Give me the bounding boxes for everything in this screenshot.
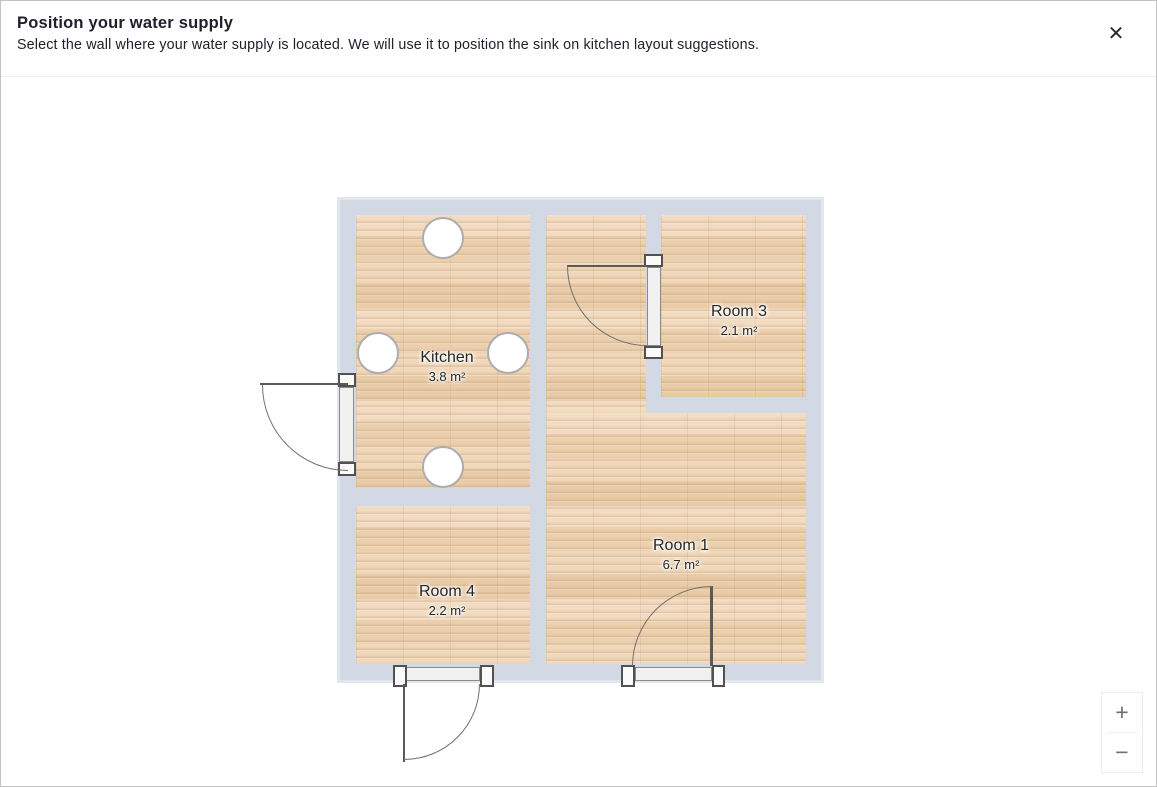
wall-marker-left[interactable] — [357, 332, 399, 374]
door-swing-arc — [262, 385, 348, 471]
wall-marker-bottom[interactable] — [422, 446, 464, 488]
floor-plan: Kitchen 3.8 m² Room 1 6.7 m² Room 3 2.1 … — [337, 197, 824, 683]
room-label-room3: Room 3 2.1 m² — [711, 302, 767, 340]
door-jamb — [644, 346, 663, 359]
floorplan-canvas: Kitchen 3.8 m² Room 1 6.7 m² Room 3 2.1 … — [1, 78, 1156, 786]
room-name: Room 3 — [711, 302, 767, 322]
room-label-room1: Room 1 6.7 m² — [653, 536, 709, 574]
room-label-kitchen: Kitchen 3.8 m² — [420, 348, 473, 386]
wall-marker-top[interactable] — [422, 217, 464, 259]
modal: Position your water supply Select the wa… — [0, 0, 1157, 787]
room-area: 3.8 m² — [420, 368, 473, 386]
zoom-out-button[interactable]: − — [1102, 733, 1142, 772]
door-slab — [406, 667, 480, 681]
door-slab — [647, 267, 661, 346]
room-area: 2.1 m² — [711, 322, 767, 340]
zoom-controls: + − — [1101, 692, 1143, 773]
modal-header: Position your water supply Select the wa… — [1, 1, 1156, 77]
room-area: 2.2 m² — [419, 602, 475, 620]
door-jamb — [480, 665, 494, 687]
door-swing-arc — [404, 684, 480, 760]
zoom-in-button[interactable]: + — [1102, 693, 1142, 732]
page-title: Position your water supply — [17, 12, 1140, 35]
wall-marker-right[interactable] — [487, 332, 529, 374]
door-jamb — [621, 665, 635, 687]
room-name: Room 4 — [419, 582, 475, 602]
page-subtitle: Select the wall where your water supply … — [17, 35, 1140, 56]
door-jamb — [712, 665, 725, 687]
door-slab — [635, 667, 712, 681]
room-name: Kitchen — [420, 348, 473, 368]
room-name: Room 1 — [653, 536, 709, 556]
close-icon[interactable]: ✕ — [1102, 20, 1130, 48]
room-area: 6.7 m² — [653, 556, 709, 574]
room-label-room4: Room 4 2.2 m² — [419, 582, 475, 620]
